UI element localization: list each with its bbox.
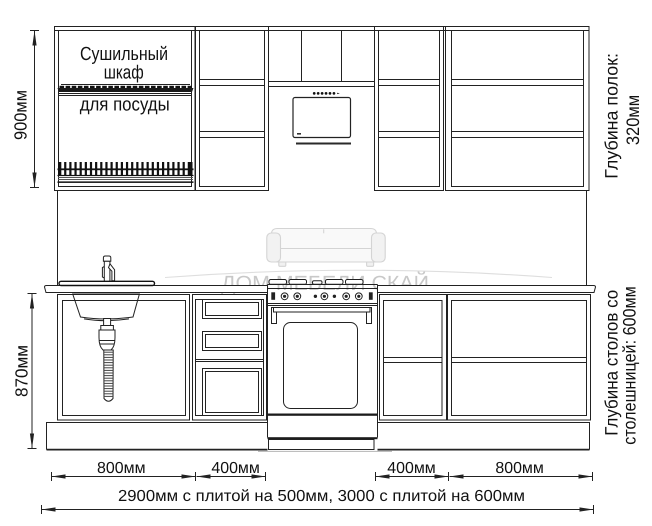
svg-text:шкаф: шкаф (104, 63, 144, 84)
svg-text:2900мм с плитой на 500мм, 3000: 2900мм с плитой на 500мм, 3000 с плитой … (118, 488, 525, 505)
svg-text:400мм: 400мм (387, 460, 436, 477)
svg-text:870мм: 870мм (12, 345, 32, 397)
svg-text:800мм: 800мм (97, 460, 146, 477)
svg-text:столешницей: 600мм: столешницей: 600мм (620, 286, 640, 445)
svg-text:Глубина полок:: Глубина полок: (602, 53, 622, 179)
svg-text:для посуды: для посуды (80, 95, 170, 116)
svg-text:900мм: 900мм (11, 90, 31, 140)
svg-text:400мм: 400мм (211, 460, 260, 477)
svg-text:Глубина столов со: Глубина столов со (602, 290, 622, 436)
svg-text:800мм: 800мм (495, 460, 544, 477)
svg-text:320мм: 320мм (623, 95, 643, 145)
